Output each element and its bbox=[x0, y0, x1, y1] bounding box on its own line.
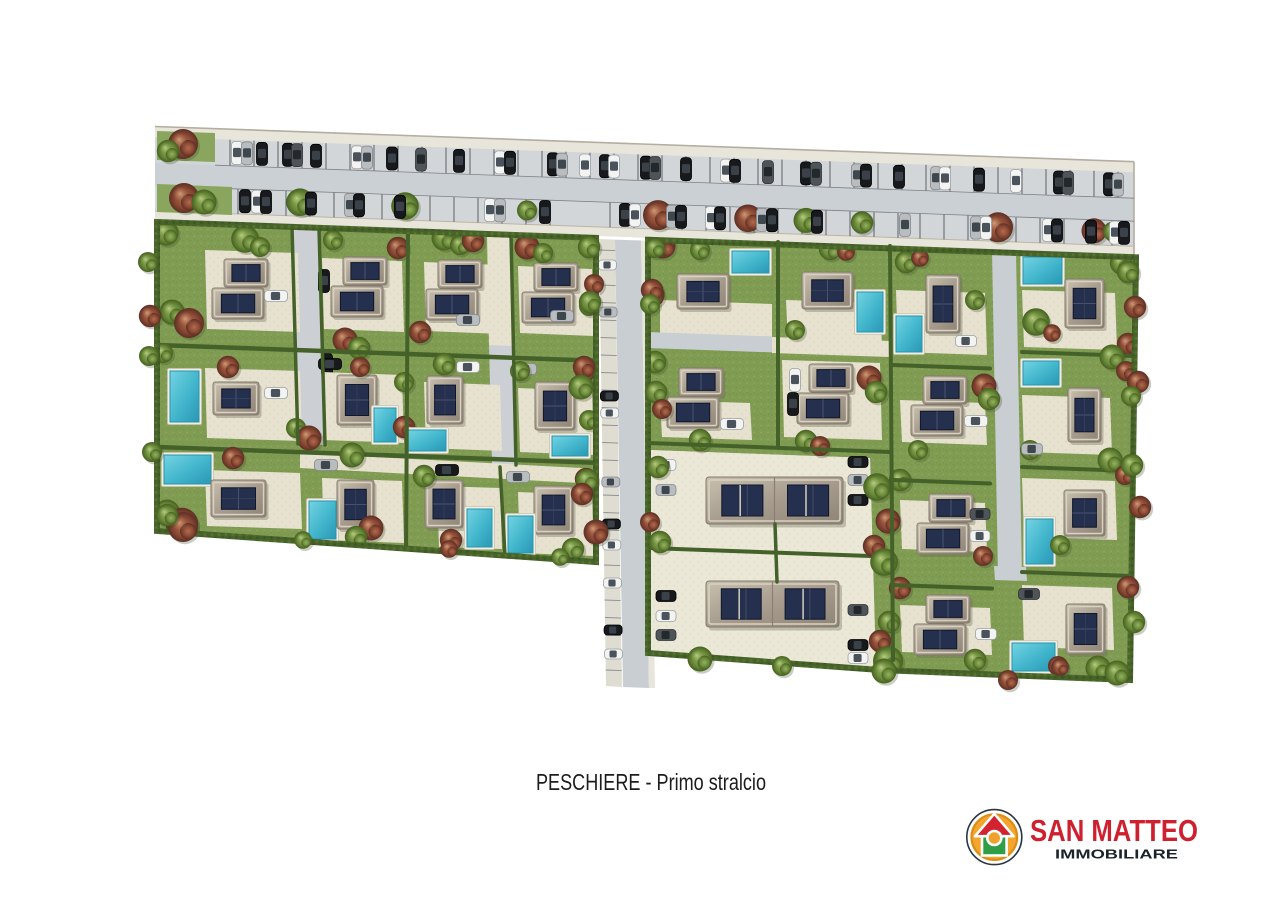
svg-text:IMMOBILIARE: IMMOBILIARE bbox=[1055, 848, 1178, 862]
svg-text:SAN MATTEO: SAN MATTEO bbox=[1030, 813, 1198, 848]
svg-text:PESCHIERE - Primo stralcio: PESCHIERE - Primo stralcio bbox=[536, 769, 766, 795]
